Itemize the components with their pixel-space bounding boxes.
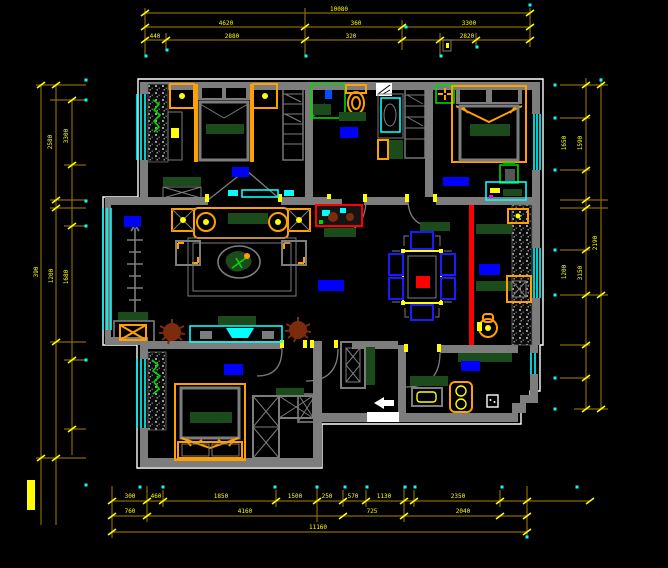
dimension-label: 390 xyxy=(33,266,40,277)
wardrobe-tl xyxy=(283,84,303,160)
dimensions-left xyxy=(27,79,88,526)
lamp-right xyxy=(262,93,268,99)
chair-west-1 xyxy=(389,254,403,275)
wall-kitchen-top xyxy=(440,345,518,353)
wall-kitchen-right-2 xyxy=(530,374,538,395)
coffee-table xyxy=(218,246,260,278)
room-marker-bedroom-top-left xyxy=(232,167,249,177)
dimension-label: 300 xyxy=(125,493,136,500)
floorplan-drawing: 1008046203603300440288032028203004601850… xyxy=(0,0,668,568)
bath-shelf xyxy=(389,140,403,159)
tv-stand xyxy=(190,326,282,342)
tv-mat xyxy=(218,316,256,325)
dimension-label: 250 xyxy=(322,493,333,500)
tv-bedroom-tl xyxy=(228,190,294,197)
room-living xyxy=(114,208,311,344)
shower-bench xyxy=(313,104,331,115)
dimension-label: 440 xyxy=(150,33,161,40)
entry-threshold xyxy=(367,412,399,422)
end-table-right xyxy=(288,209,310,231)
dimension-label: 1130 xyxy=(377,493,392,500)
entry-arrow-icon xyxy=(374,397,394,409)
kitchen-counter-top xyxy=(458,353,512,362)
bed-runner-tr xyxy=(470,124,510,136)
wall-entry-west xyxy=(313,341,322,467)
window-dining-right xyxy=(534,248,540,298)
window-bedroom-bl xyxy=(137,359,145,428)
dimensions-right xyxy=(554,78,609,412)
dimension-label: 760 xyxy=(125,508,136,515)
wall-balcony-left xyxy=(105,205,111,337)
corridor-sideboard xyxy=(316,199,362,237)
dining-bench xyxy=(420,222,450,231)
room-marker-living-room xyxy=(318,280,344,291)
sideboard-mat xyxy=(324,228,356,237)
dimension-label: 2880 xyxy=(225,33,240,40)
dimension-label: 2350 xyxy=(451,493,466,500)
wall-bath-right xyxy=(425,90,433,197)
wall-kitchen-right-1 xyxy=(530,345,538,353)
dimension-label: 3300 xyxy=(63,128,70,143)
shower-head xyxy=(325,90,332,99)
chair-east-1 xyxy=(441,254,455,275)
tv-living xyxy=(226,328,254,338)
radiator xyxy=(127,225,143,318)
decor-hatch-panel xyxy=(148,84,168,162)
window-kitchen xyxy=(531,353,535,374)
wall-mid-4 xyxy=(436,197,532,205)
walls xyxy=(105,82,540,467)
dimension-label: 1200 xyxy=(561,264,568,279)
table-centerpiece xyxy=(416,276,430,288)
room-marker-kitchen xyxy=(461,361,480,371)
plant-left xyxy=(159,319,185,344)
chair-south xyxy=(411,305,433,320)
wall-right-3 xyxy=(532,298,540,345)
wardrobe-bl xyxy=(253,396,313,458)
room-bedroom-top-left xyxy=(148,84,303,198)
hall-shelf xyxy=(366,347,375,385)
sofa-cushion xyxy=(228,213,268,224)
bed-runner-bl xyxy=(190,412,232,423)
chair-east-2 xyxy=(441,278,455,299)
dimension-label: 1650 xyxy=(561,135,568,150)
bed-double-bl xyxy=(175,384,245,460)
desk-item xyxy=(489,195,493,198)
dimension-label: 4160 xyxy=(238,508,253,515)
dresser xyxy=(163,187,201,198)
dresser-top xyxy=(163,177,201,186)
cad-floorplan-canvas: 1008046203603300440288032028203004601850… xyxy=(0,0,668,568)
chair-west-2 xyxy=(389,278,403,299)
bed-double xyxy=(194,84,254,162)
bed-double-tr xyxy=(452,86,526,162)
room-marker-balcony xyxy=(124,216,141,227)
dimension-label: 460 xyxy=(151,493,162,500)
power-outlet xyxy=(487,395,498,407)
kitchen-sink xyxy=(412,388,442,406)
dimension-label: 2820 xyxy=(460,33,475,40)
dimension-label: 1200 xyxy=(48,268,55,283)
dimension-label: 570 xyxy=(348,493,359,500)
wall-kitchen-step-2 xyxy=(512,403,526,413)
lamp-left xyxy=(179,93,185,99)
door-arc-bedroom-bl xyxy=(257,349,282,376)
dimension-label: 3300 xyxy=(462,20,477,27)
building-outline xyxy=(103,79,543,468)
dining-table xyxy=(401,249,443,305)
wall-kitchen-step-1 xyxy=(520,395,538,403)
dimension-label: 1680 xyxy=(63,269,70,284)
dressing-stool xyxy=(171,128,179,138)
wall-entry-kitchen xyxy=(398,345,406,413)
desk-chair xyxy=(500,163,518,183)
wall-mid-3 xyxy=(364,197,408,205)
wall-balcony-top xyxy=(105,197,148,205)
dimension-label: 3150 xyxy=(577,265,584,280)
dimension-label: 4620 xyxy=(219,20,234,27)
dimension-label: 2580 xyxy=(47,134,54,149)
washbasin xyxy=(378,94,403,138)
wall-left-top-1 xyxy=(140,82,148,94)
dimension-label: 725 xyxy=(367,508,378,515)
wall-bl-left-2 xyxy=(140,428,148,458)
bath-cabinet xyxy=(378,140,388,159)
counter-1 xyxy=(476,224,512,234)
wall-bottom-entry-kitchen xyxy=(322,413,518,422)
wall-right-2 xyxy=(532,170,540,248)
dimension-label: 11160 xyxy=(309,524,327,531)
bed-runner xyxy=(206,124,244,134)
dimension-label: 320 xyxy=(346,33,357,40)
water-heater xyxy=(477,314,497,337)
room-marker-bathroom xyxy=(340,127,358,138)
armchair-right xyxy=(282,241,306,265)
dimension-label: 1590 xyxy=(577,135,584,150)
left-dim-block xyxy=(27,480,35,510)
dimension-label: 10080 xyxy=(330,6,348,13)
bath-mat xyxy=(339,112,366,121)
linen-closet xyxy=(405,84,425,158)
dimension-label: 2190 xyxy=(592,235,599,250)
kitchen-counter-left xyxy=(410,376,448,386)
stove xyxy=(450,382,472,412)
room-dining xyxy=(389,222,455,320)
wall-right-1 xyxy=(532,82,540,114)
dimension-label: 1500 xyxy=(288,493,303,500)
dimension-label: 360 xyxy=(351,20,362,27)
room-bathroom xyxy=(311,84,425,159)
chair-north xyxy=(411,232,433,249)
dimension-label: 1850 xyxy=(214,493,229,500)
room-marker-dining-area xyxy=(479,264,500,275)
end-table-left xyxy=(172,209,194,231)
dimension-label: 2040 xyxy=(456,508,471,515)
room-marker-bedroom-bottom-left xyxy=(224,364,243,375)
wall-left-top-2 xyxy=(140,160,148,200)
wall-red-highlight xyxy=(469,205,474,345)
window-bedroom-tr xyxy=(534,114,540,170)
plant-right xyxy=(285,317,311,342)
room-marker-bedroom-top-right xyxy=(443,177,469,186)
